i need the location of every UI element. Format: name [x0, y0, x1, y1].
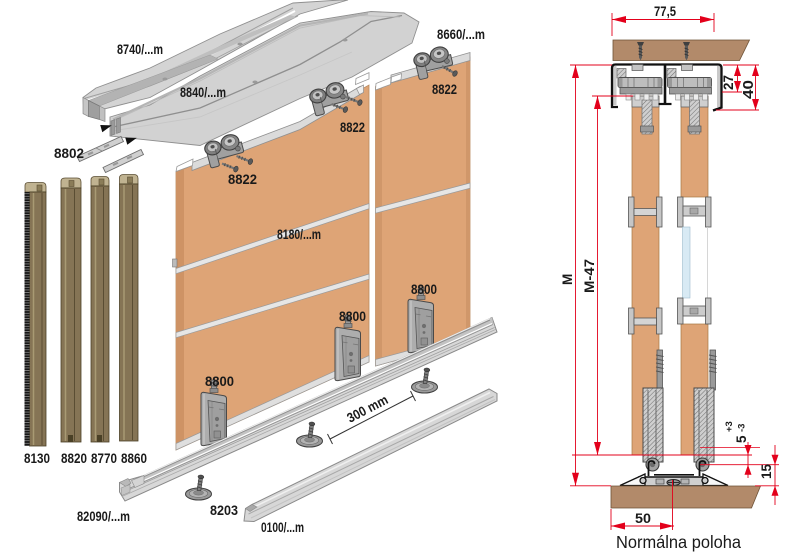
svg-text:8740/...m: 8740/...m	[117, 42, 163, 57]
svg-text:8770: 8770	[91, 451, 117, 466]
svg-text:50: 50	[635, 511, 651, 526]
svg-text:27: 27	[721, 75, 736, 90]
svg-text:15: 15	[759, 464, 774, 479]
svg-text:Normálna poloha: Normálna poloha	[616, 532, 741, 552]
svg-text:8800: 8800	[411, 282, 437, 297]
svg-text:8180/...m: 8180/...m	[277, 227, 321, 242]
svg-text:+3: +3	[724, 421, 735, 432]
svg-text:77,5: 77,5	[654, 4, 676, 19]
svg-text:8820: 8820	[61, 451, 87, 466]
svg-text:8800: 8800	[205, 374, 234, 389]
svg-text:M: M	[560, 274, 575, 285]
svg-text:8203: 8203	[210, 503, 238, 518]
svg-text:8860: 8860	[121, 451, 147, 466]
svg-text:0100/...m: 0100/...m	[261, 520, 304, 535]
svg-text:-3: -3	[737, 424, 748, 432]
svg-text:8130: 8130	[24, 451, 50, 466]
svg-text:M-47: M-47	[582, 259, 597, 293]
svg-text:40: 40	[740, 80, 757, 99]
svg-text:8840/...m: 8840/...m	[180, 85, 226, 100]
svg-text:5: 5	[734, 435, 749, 443]
svg-text:8802: 8802	[54, 146, 84, 161]
svg-text:8822: 8822	[228, 172, 257, 187]
svg-text:8822: 8822	[340, 120, 365, 135]
svg-text:8822: 8822	[432, 82, 457, 97]
svg-text:82090/...m: 82090/...m	[77, 509, 130, 524]
svg-text:8660/...m: 8660/...m	[437, 27, 485, 42]
svg-text:8800: 8800	[339, 309, 366, 324]
